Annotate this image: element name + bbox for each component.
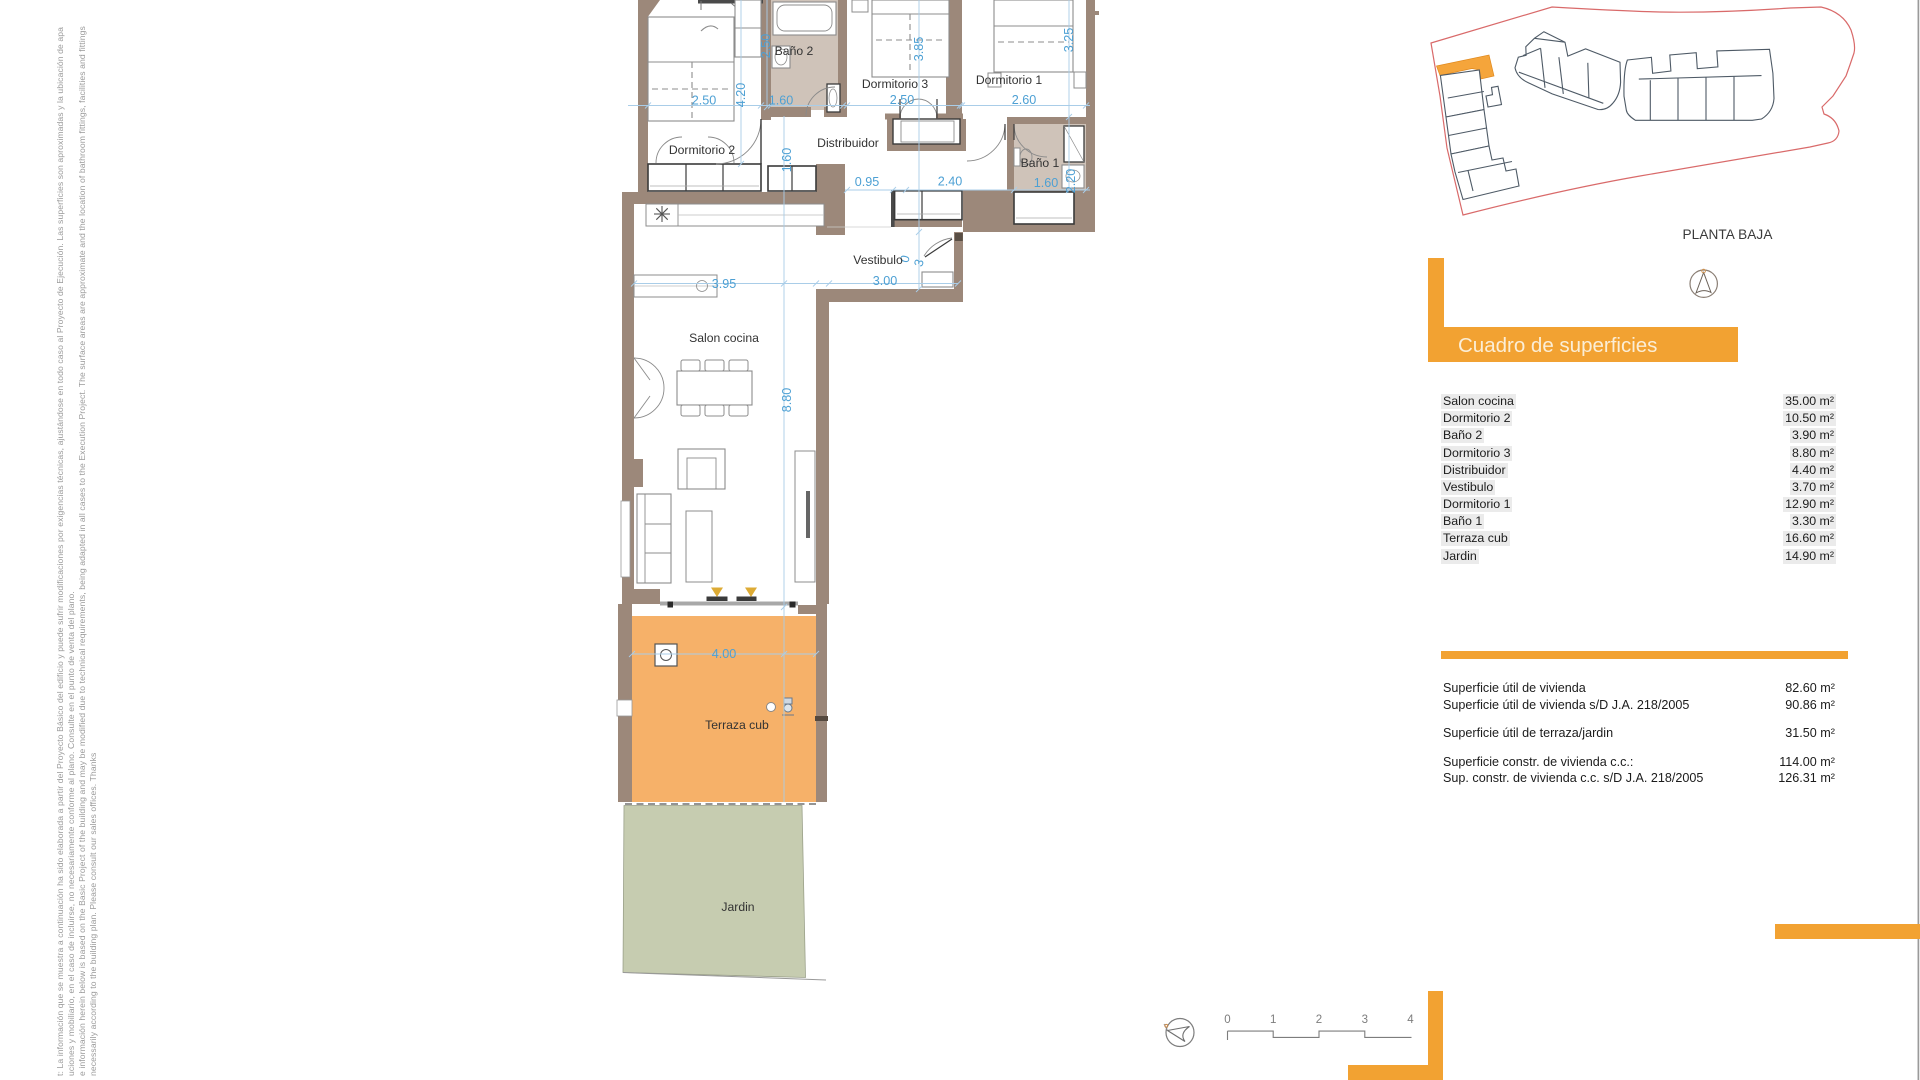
svg-text:4.20: 4.20: [734, 83, 748, 108]
svg-text:2.50: 2.50: [692, 94, 717, 108]
svg-text:2: 2: [1316, 1014, 1322, 1026]
svg-text:2.50: 2.50: [890, 93, 915, 107]
svg-text:Dormitorio 1: Dormitorio 1: [976, 73, 1043, 87]
svg-text:0.95: 0.95: [855, 175, 880, 189]
svg-text:4: 4: [1407, 1014, 1414, 1026]
svg-text:2.50: 2.50: [759, 34, 773, 59]
svg-text:4.00: 4.00: [712, 647, 737, 661]
svg-text:3: 3: [1362, 1014, 1368, 1026]
svg-text:Distribuidor: Distribuidor: [817, 136, 879, 150]
svg-text:Salon cocina: Salon cocina: [689, 331, 759, 345]
svg-text:1.60: 1.60: [769, 94, 794, 108]
svg-text:3.25: 3.25: [1062, 28, 1076, 53]
svg-text:Baño 2: Baño 2: [775, 44, 814, 58]
svg-text:3.00: 3.00: [873, 274, 898, 288]
svg-text:1.60: 1.60: [780, 148, 794, 173]
svg-text:3.95: 3.95: [712, 277, 737, 291]
svg-text:8.80: 8.80: [780, 388, 794, 413]
svg-text:3.85: 3.85: [912, 37, 926, 62]
svg-text:2.20: 2.20: [1064, 169, 1078, 194]
svg-text:0: 0: [1224, 1014, 1230, 1026]
svg-text:1: 1: [1270, 1014, 1276, 1026]
svg-text:Vestibulo: Vestibulo: [853, 253, 903, 267]
svg-text:1.60: 1.60: [1034, 176, 1059, 190]
svg-text:2.60: 2.60: [1012, 93, 1037, 107]
svg-text:Jardin: Jardin: [721, 900, 754, 914]
svg-text:Dormitorio 3: Dormitorio 3: [862, 77, 929, 91]
svg-text:Baño 1: Baño 1: [1021, 156, 1060, 170]
svg-text:Dormitorio 2: Dormitorio 2: [669, 143, 736, 157]
svg-text:Terraza cub: Terraza cub: [705, 718, 769, 732]
svg-text:2.40: 2.40: [938, 175, 963, 189]
